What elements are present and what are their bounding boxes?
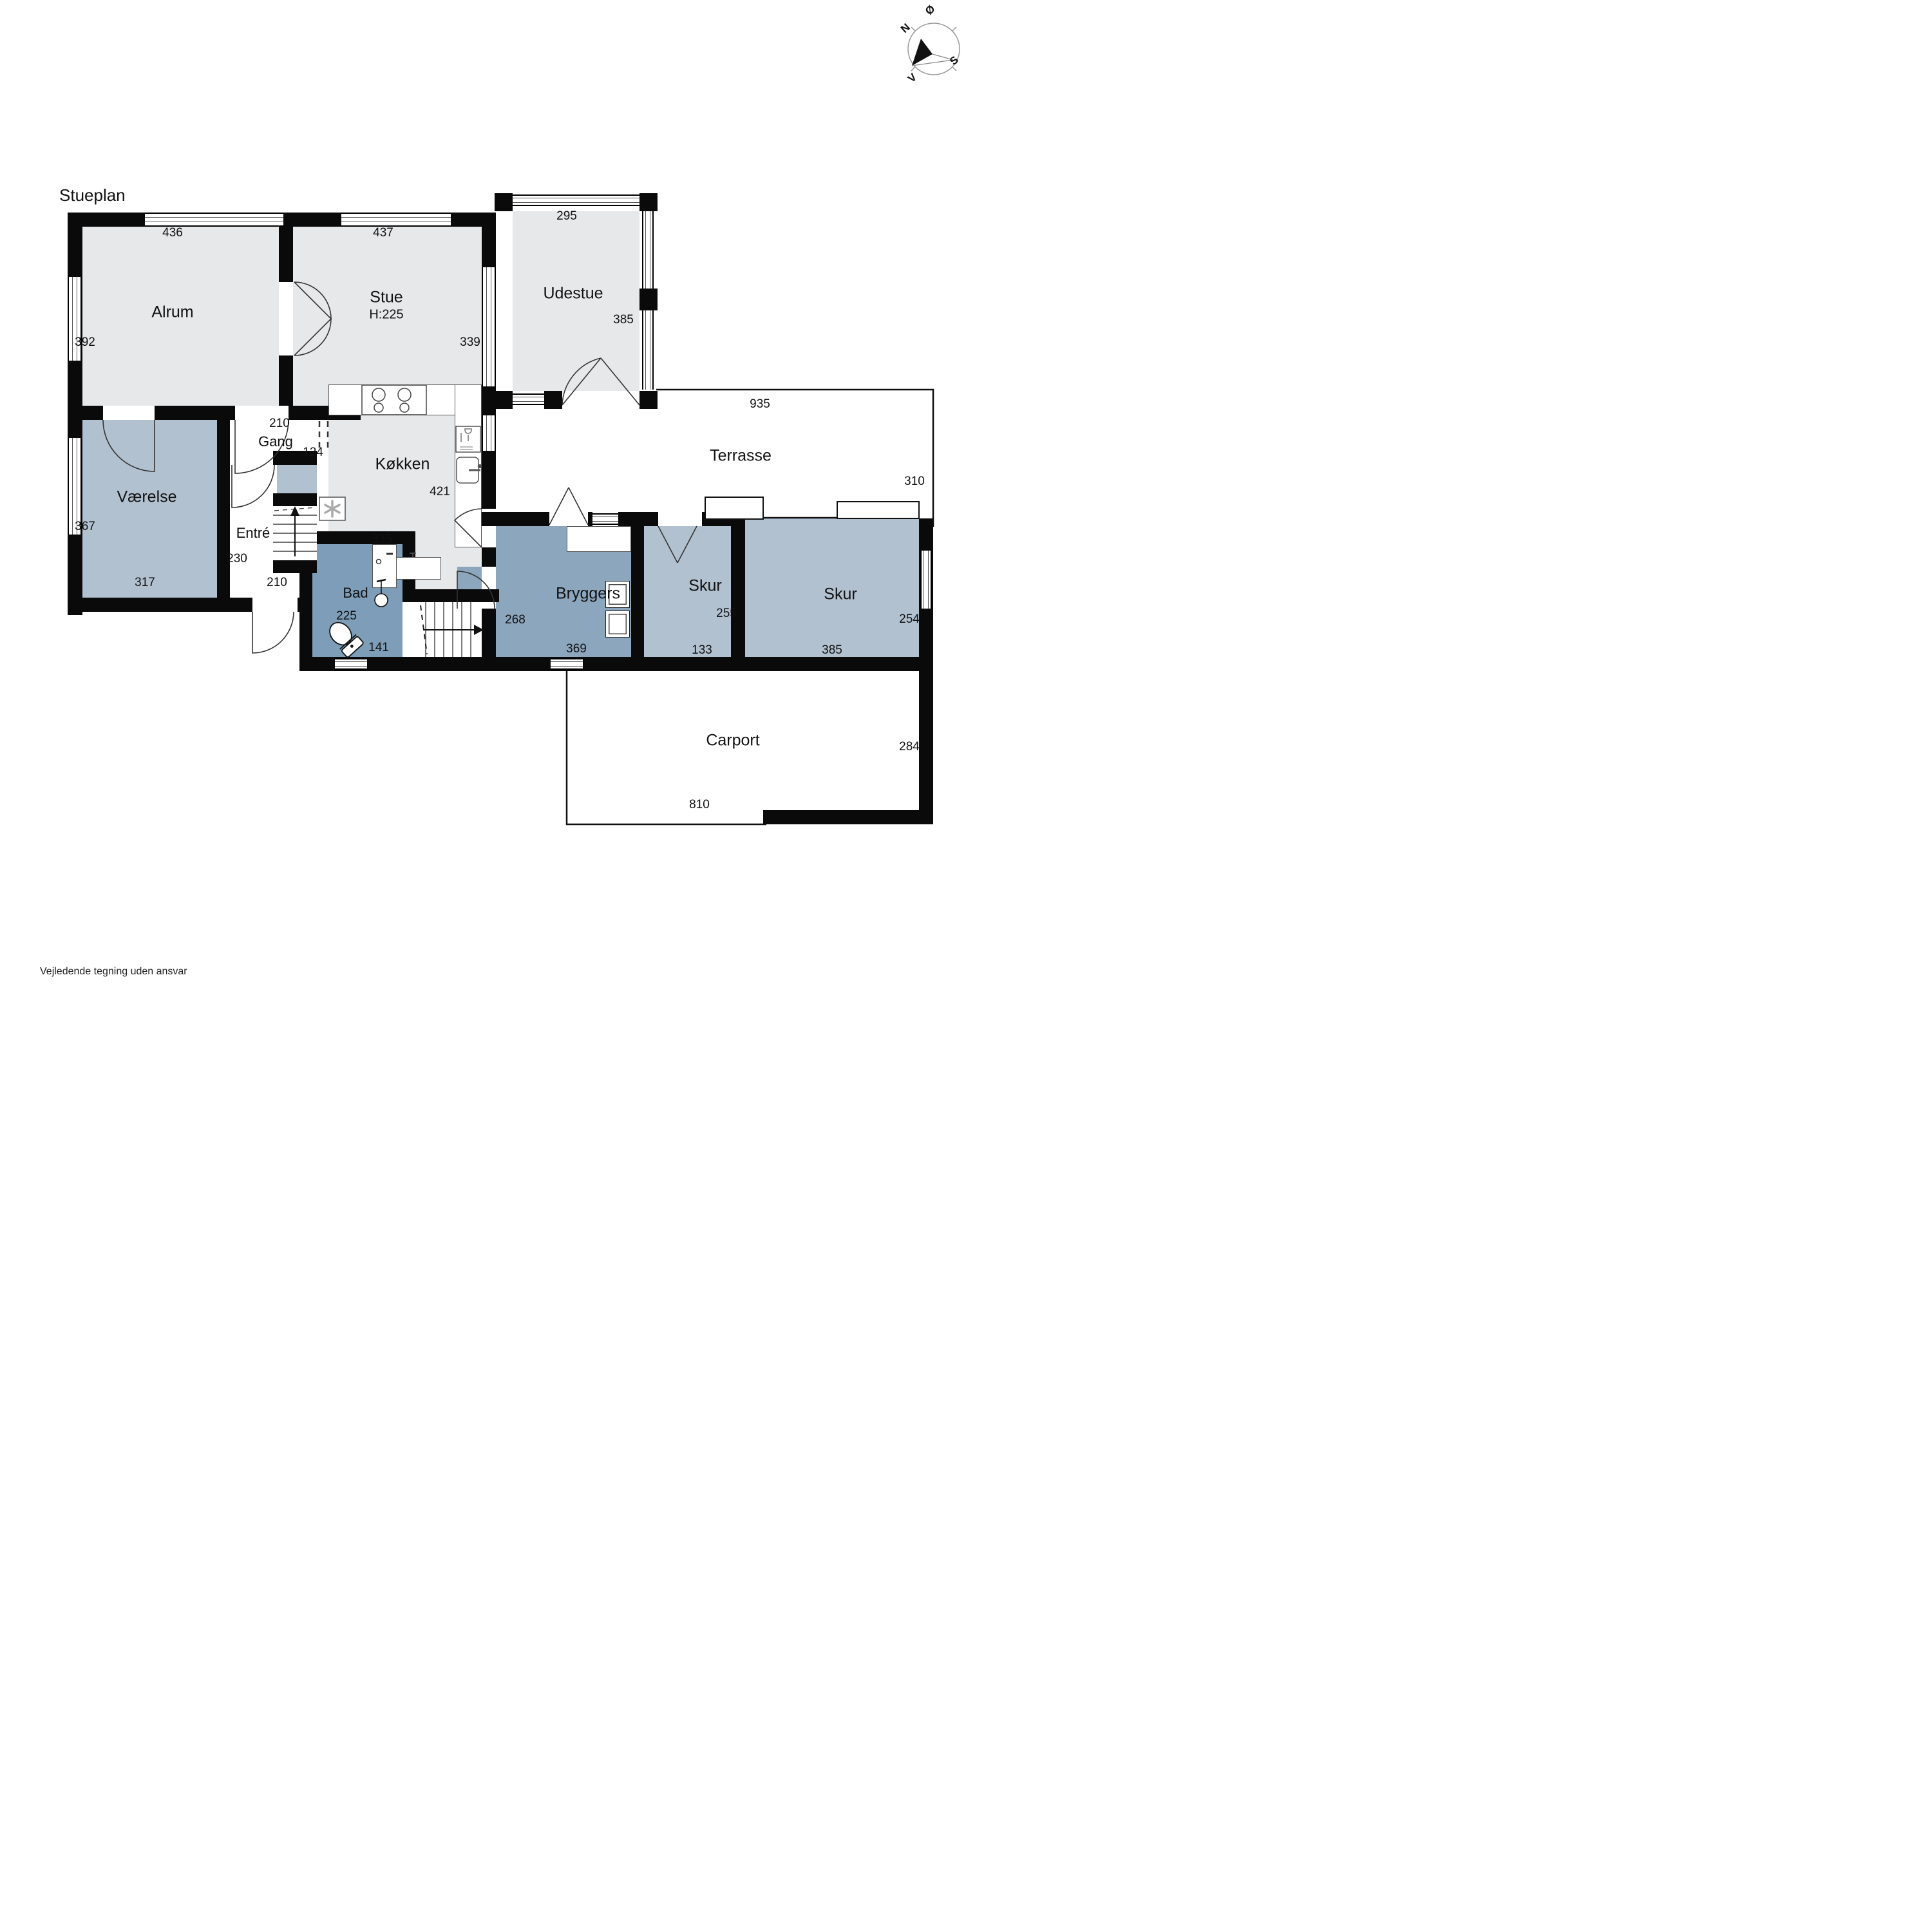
dim-skur-small-depth: 255 [716,607,737,621]
window [482,267,496,386]
room-label-terrasse: Terrasse [710,447,772,466]
room-label-vaerelse: Værelse [117,488,176,507]
wall [279,227,293,282]
window [341,213,451,227]
window [642,211,654,289]
floorplan-canvas: N Ø S V Stueplan Alrum Stue H:225 Udestu… [0,0,966,995]
wall [273,493,317,506]
terrasse-outline [656,390,933,527]
wall [312,531,415,544]
wall [631,526,644,657]
room-label-entre: Entré [236,525,270,542]
dryer-icon [605,611,630,638]
window [513,194,639,206]
compass-e: Ø [923,3,938,17]
wall [482,451,496,509]
room-label-bad: Bad [343,585,368,601]
stairs-upper [273,506,317,560]
dim-alrum-width: 436 [162,226,183,240]
dim-carport-width: 810 [689,798,710,812]
dim-entre-door: 210 [267,576,287,590]
dim-entre-depth: 230 [227,552,247,566]
wall [279,355,293,406]
dim-skur-small-width: 133 [692,643,712,658]
wall [299,657,499,671]
dim-terrasse-depth: 310 [904,475,925,489]
window [920,551,932,609]
dim-gang-opening: 124 [303,446,323,460]
udestue-post [495,193,513,211]
dim-bryggers-width: 369 [566,642,587,656]
bad-door-leaf [372,544,397,588]
wall [588,512,592,526]
dim-bryggers-entry: 268 [505,613,526,627]
window [642,310,654,390]
room-label-skur-large: Skur [824,585,857,604]
kitchen-counter-right [455,384,482,547]
dim-bad-depth: 225 [336,609,357,623]
wall [402,589,499,602]
wall [217,420,230,598]
dim-bad-width: 141 [368,641,389,655]
dim-udestue-depth: 385 [613,313,634,327]
wall [482,657,933,671]
compass-n: N [898,21,913,35]
dim-alrum-depth: 392 [75,336,95,350]
wall [482,512,549,526]
room-label-koekken: Køkken [375,455,430,474]
dim-koekken-depth: 421 [430,485,450,499]
dim-koekken-width: 335 [372,533,392,547]
dim-skur-large-width: 385 [822,643,842,658]
room-label-udestue: Udestue [543,285,603,303]
wall [763,810,933,824]
bryggers-worktop [567,526,631,552]
dim-stue-ceiling: H:225 [369,308,403,323]
udestue-post [495,391,513,409]
window [482,415,496,451]
window [145,213,283,227]
wall [155,406,235,420]
wall [731,518,745,657]
window [513,393,544,405]
wall [482,386,496,415]
wall [68,598,252,612]
disclaimer-text: Vejledende tegning uden ansvar [40,966,187,978]
room-label-skur-small: Skur [688,577,721,596]
dim-stue-width: 437 [373,226,393,240]
window [335,658,367,670]
dim-carport-depth: 284 [899,740,920,754]
compass-icon: N Ø S V [898,3,961,85]
dim-vaerelse-depth: 367 [75,520,95,534]
closet [277,465,317,493]
dim-skur-large-depth: 254 [899,612,920,627]
room-label-carport: Carport [706,732,759,750]
udestue-post [639,193,658,211]
wall [68,406,103,420]
dim-stue-depth: 339 [460,336,480,350]
wall [618,512,658,526]
wall [482,213,496,267]
stairs-lower [415,602,482,657]
room-label-alrum: Alrum [151,303,193,322]
plan-title: Stueplan [59,185,126,205]
dim-terrasse-width: 935 [750,397,770,412]
compass-w: V [905,71,920,85]
udestue-post [639,289,658,310]
compass-s: S [947,53,961,68]
udestue-post [639,391,658,409]
room-label-stue: Stue [370,289,402,307]
dim-udestue-width: 295 [556,209,577,223]
window [551,658,583,670]
window [592,513,618,525]
room-vaerelse [82,420,217,598]
wall [482,547,496,567]
udestue-post [544,391,562,409]
room-label-bryggers: Bryggers [556,585,620,603]
dim-gang-width: 210 [269,417,290,431]
dim-vaerelse-width: 317 [135,576,155,590]
room-label-gang: Gang [258,433,293,450]
